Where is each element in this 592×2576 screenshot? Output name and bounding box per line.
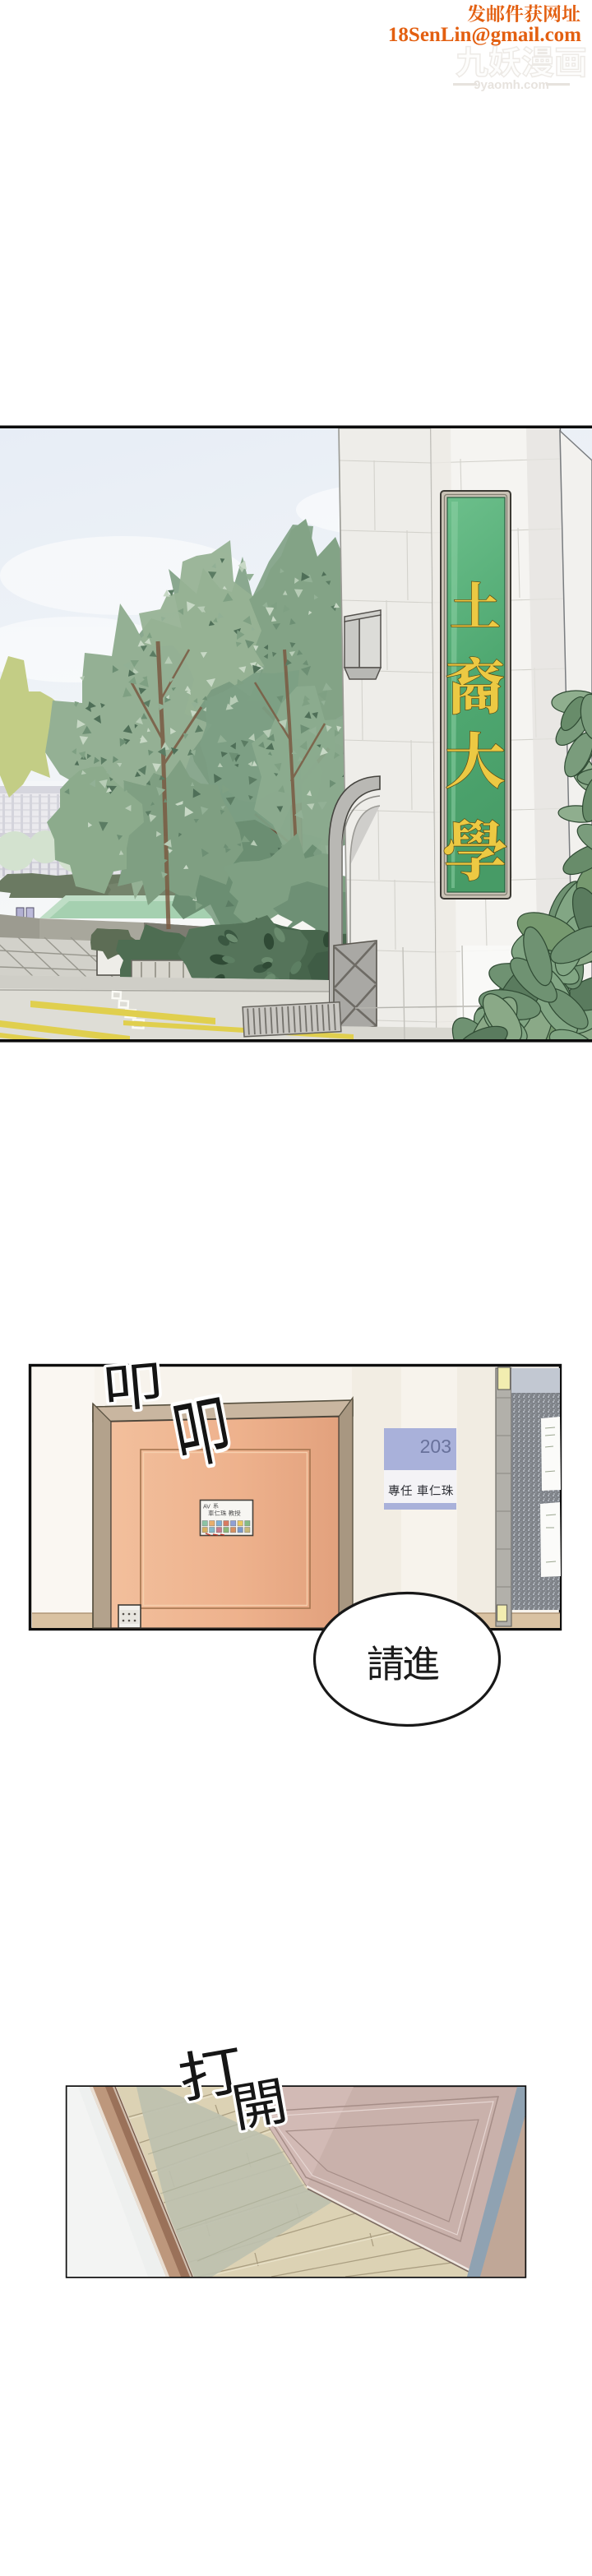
svg-text:9yaomh.com: 9yaomh.com: [474, 78, 549, 92]
svg-text:18SenLin@gmail.com: 18SenLin@gmail.com: [388, 24, 581, 46]
svg-text:203: 203: [420, 1436, 451, 1457]
svg-text:AV: AV: [203, 1505, 210, 1510]
